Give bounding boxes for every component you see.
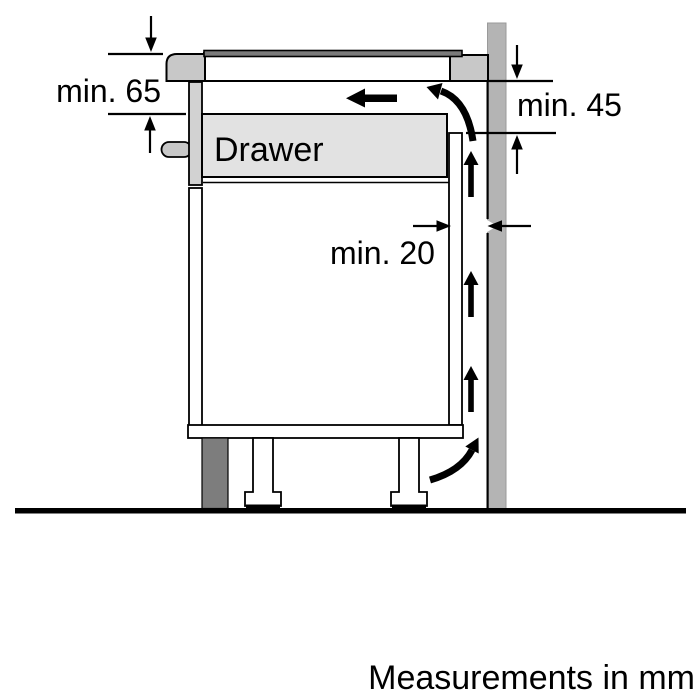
hob-front-trim	[167, 54, 206, 81]
airflow-left-arrow-shaft	[363, 95, 397, 103]
airflow-channel-arrow2-shaft	[468, 283, 474, 317]
dim-label-min-45: min. 45	[517, 87, 622, 123]
worktop-and-hob	[167, 51, 489, 82]
hob-glass-top	[204, 51, 462, 57]
airflow-top-curve-arrow-icon	[427, 83, 443, 100]
airflow-channel-arrow1-shaft	[468, 163, 474, 197]
wall-fill	[488, 23, 507, 509]
dimension-min-20	[413, 220, 531, 232]
footer-note: Measurements in mm	[368, 659, 695, 697]
dim-label-min-20: min. 20	[330, 235, 435, 271]
diagram-canvas: min. 65 min. 45 min. 20 Drawer Measureme…	[0, 0, 700, 700]
dim-65-down-arrow-icon	[145, 38, 157, 53]
airflow-channel-arrow3-shaft	[468, 378, 474, 412]
airflow-channel-arrow1-icon	[464, 151, 479, 165]
dim-45-down-arrow-icon	[511, 65, 523, 80]
drawer-handle	[162, 142, 192, 157]
front-leg	[245, 438, 281, 506]
cabinet-back-panel	[449, 133, 462, 425]
airflow-channel-arrow3-icon	[464, 366, 479, 380]
plinth-block	[202, 438, 228, 509]
worktop-rear-block	[450, 55, 488, 81]
cabinet-bottom-panel	[188, 425, 463, 438]
cabinet-door-panel	[189, 188, 202, 427]
airflow-channel-arrow2-icon	[464, 271, 479, 285]
wall	[486, 23, 506, 509]
airflow-bottom-curve	[430, 450, 472, 480]
dim-label-min-65: min. 65	[56, 73, 161, 109]
rear-leg	[391, 438, 427, 506]
drawer-label: Drawer	[214, 131, 324, 169]
installation-diagram: min. 65 min. 45 min. 20 Drawer Measureme…	[0, 0, 700, 700]
drawer-front-panel	[189, 82, 202, 185]
airflow-left-arrow-icon	[346, 89, 365, 108]
floor-line	[15, 508, 686, 514]
